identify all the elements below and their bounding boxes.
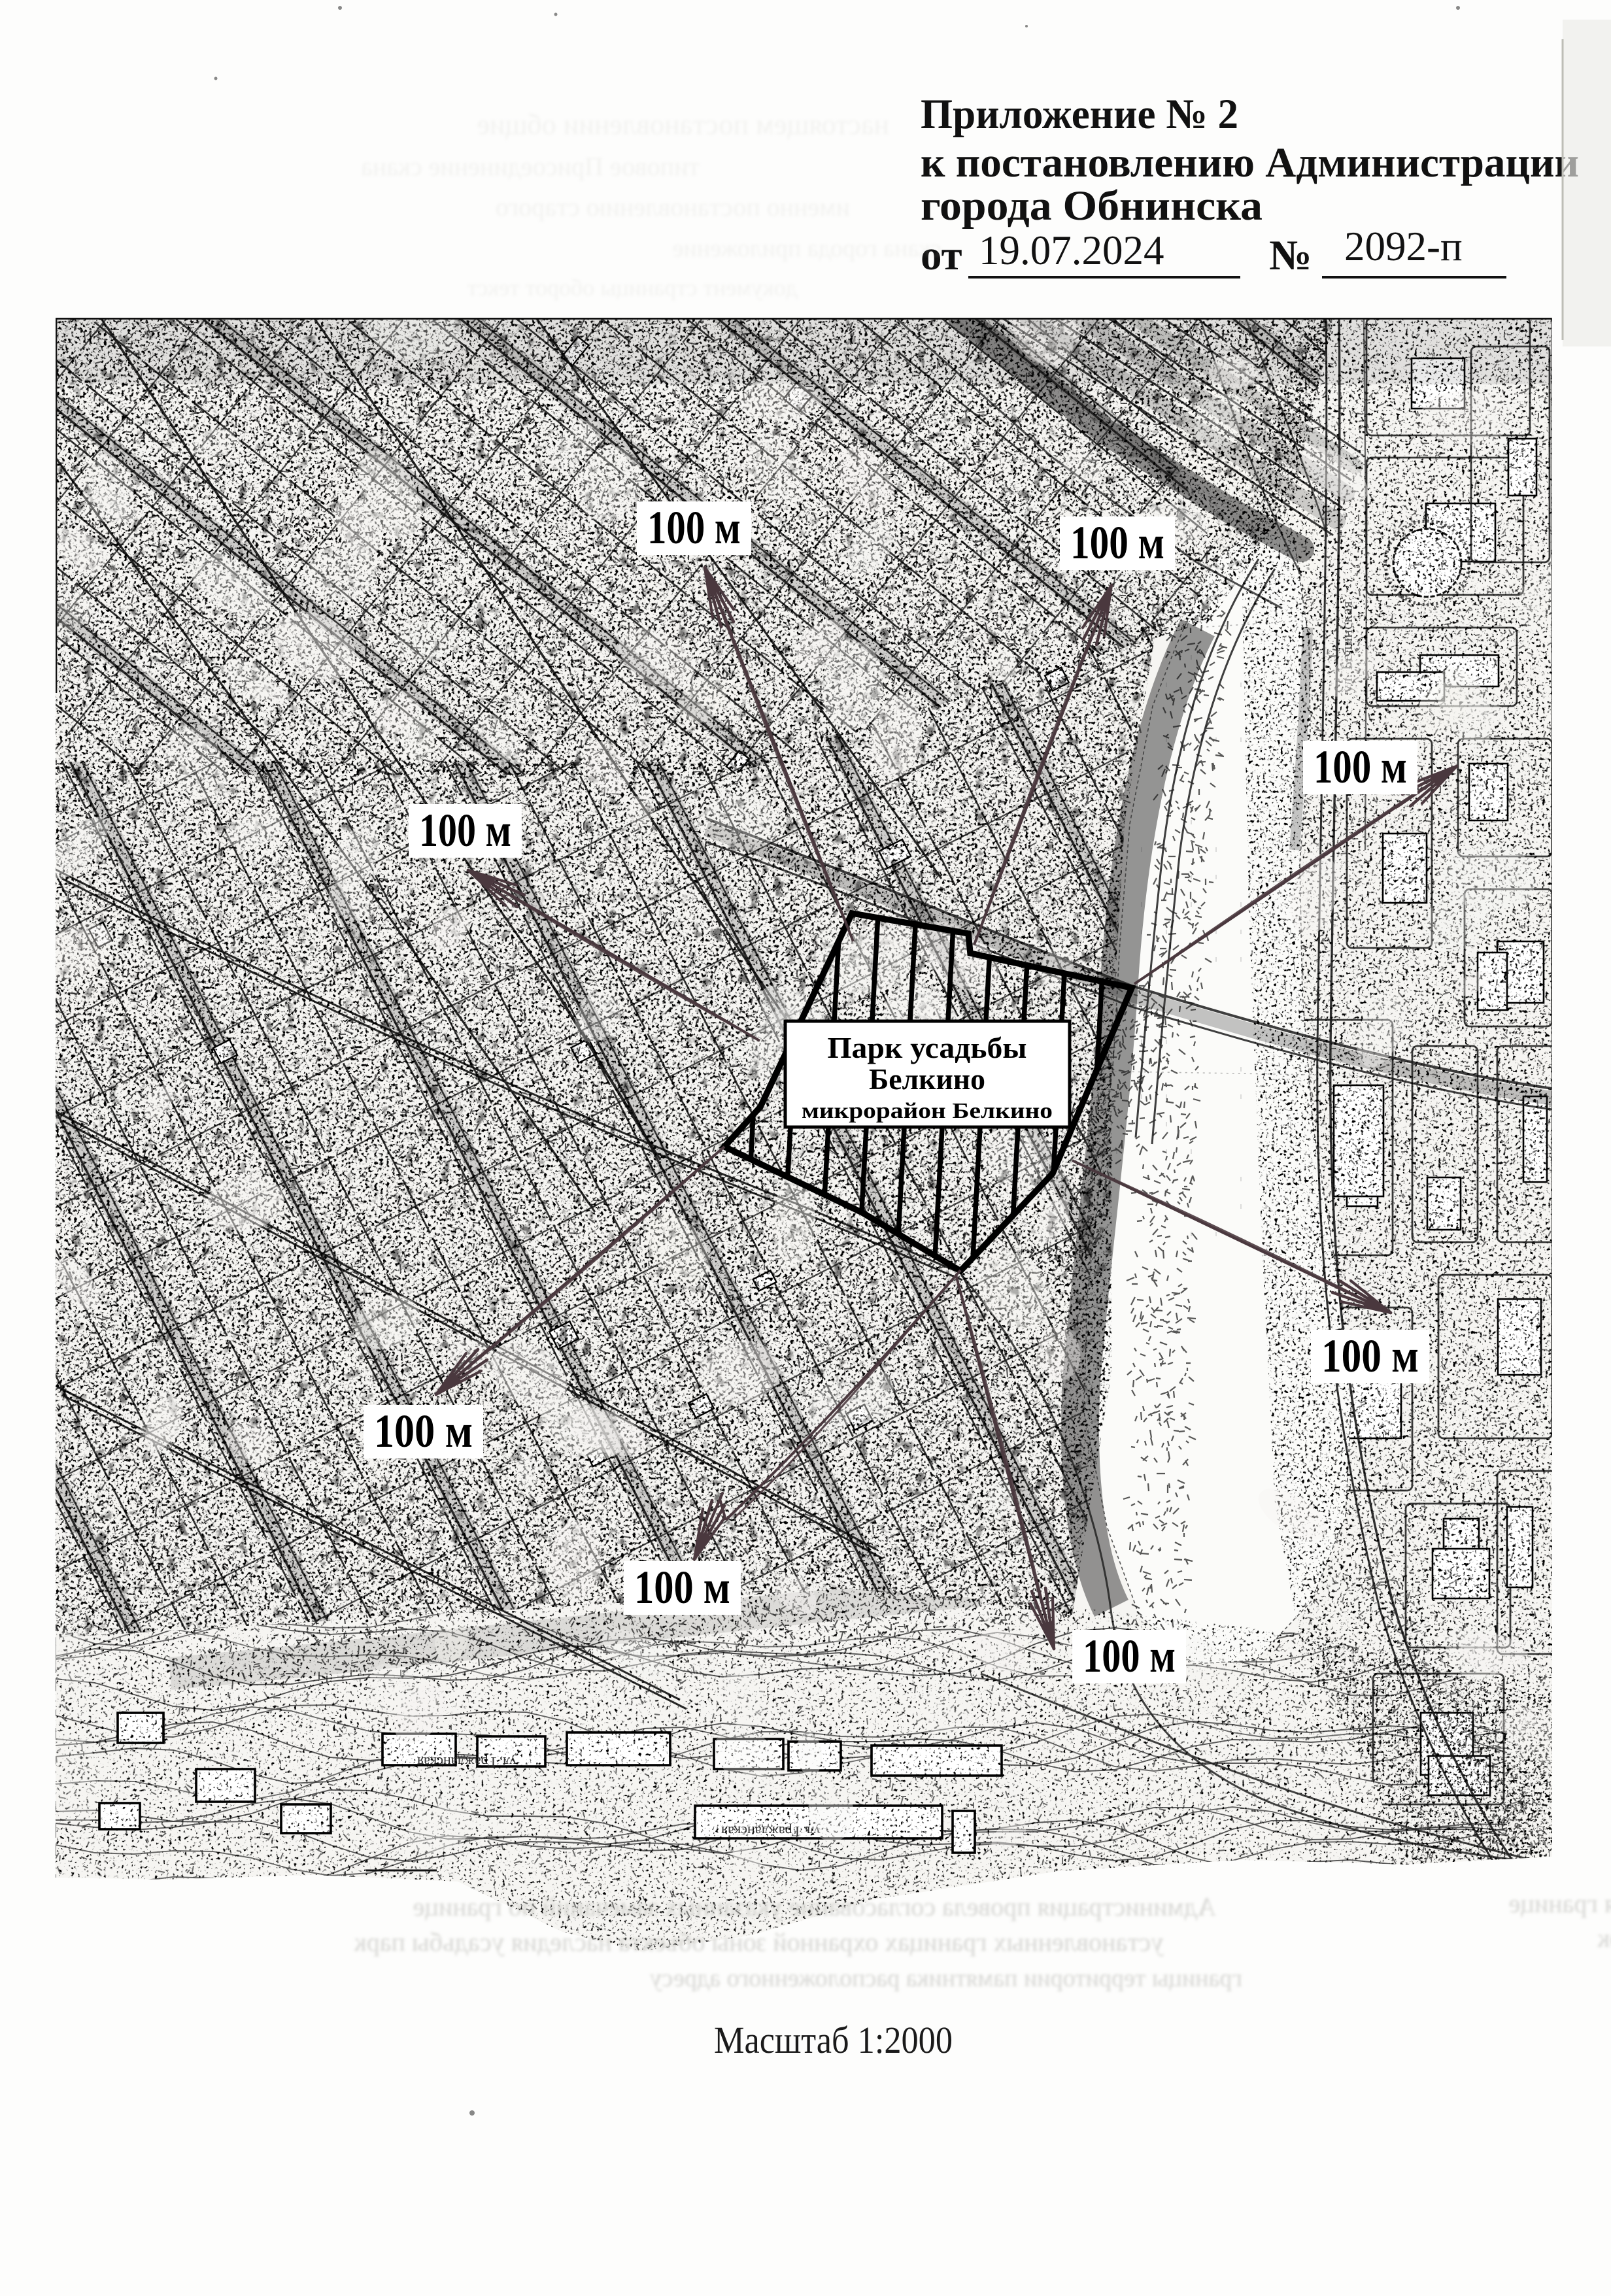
svg-text:документ страницы оборот текст: документ страницы оборот текст [467,275,798,301]
svg-text:19.07.2024: 19.07.2024 [979,228,1164,273]
svg-text:именно постановлению старого: именно постановлению старого [496,192,850,222]
svg-text:объекта наследия усадьбы парк: объекта наследия усадьбы парк [1597,1923,1611,1953]
svg-text:2092-п: 2092-п [1344,224,1463,269]
svg-text:100 м: 100 м [634,1561,730,1613]
svg-text:города Обнинска: города Обнинска [921,182,1263,229]
svg-text:№: № [1269,232,1312,279]
svg-text:типовое Присоединение скана: типовое Присоединение скана [361,152,700,181]
svg-text:Парк усадьбы: Парк усадьбы [828,1031,1027,1064]
svg-text:100 м: 100 м [647,501,741,554]
svg-text:100 м: 100 м [1070,516,1164,569]
svg-text:границы территории памятника р: границы территории памятника расположенн… [650,1965,1242,1992]
svg-text:заключение управления границе: заключение управления границе [1509,1889,1611,1918]
svg-text:микрорайон Белкино: микрорайон Белкино [802,1099,1053,1123]
svg-text:Белкино: Белкино [869,1062,985,1096]
svg-text:Администрация провела согласов: Администрация провела согласование указа… [413,1892,1216,1921]
svg-text:100 м: 100 м [1321,1330,1419,1382]
svg-text:к постановлению Администрации: к постановлению Администрации [921,139,1579,186]
svg-text:100 м: 100 м [374,1405,473,1457]
svg-text:настоящем постановлении общие: настоящем постановлении общие [477,109,889,141]
svg-text:Приложение № 2: Приложение № 2 [921,91,1238,138]
svg-text:Масштаб 1:2000: Масштаб 1:2000 [714,2019,953,2061]
svg-text:100 м: 100 м [1083,1630,1176,1682]
svg-text:установленных границах охранно: установленных границах охранной зоны объ… [354,1927,1164,1957]
svg-text:скана города приложение: скана города приложение [673,235,941,262]
svg-text:100 м: 100 м [419,804,511,856]
svg-text:100 м: 100 м [1314,741,1407,793]
